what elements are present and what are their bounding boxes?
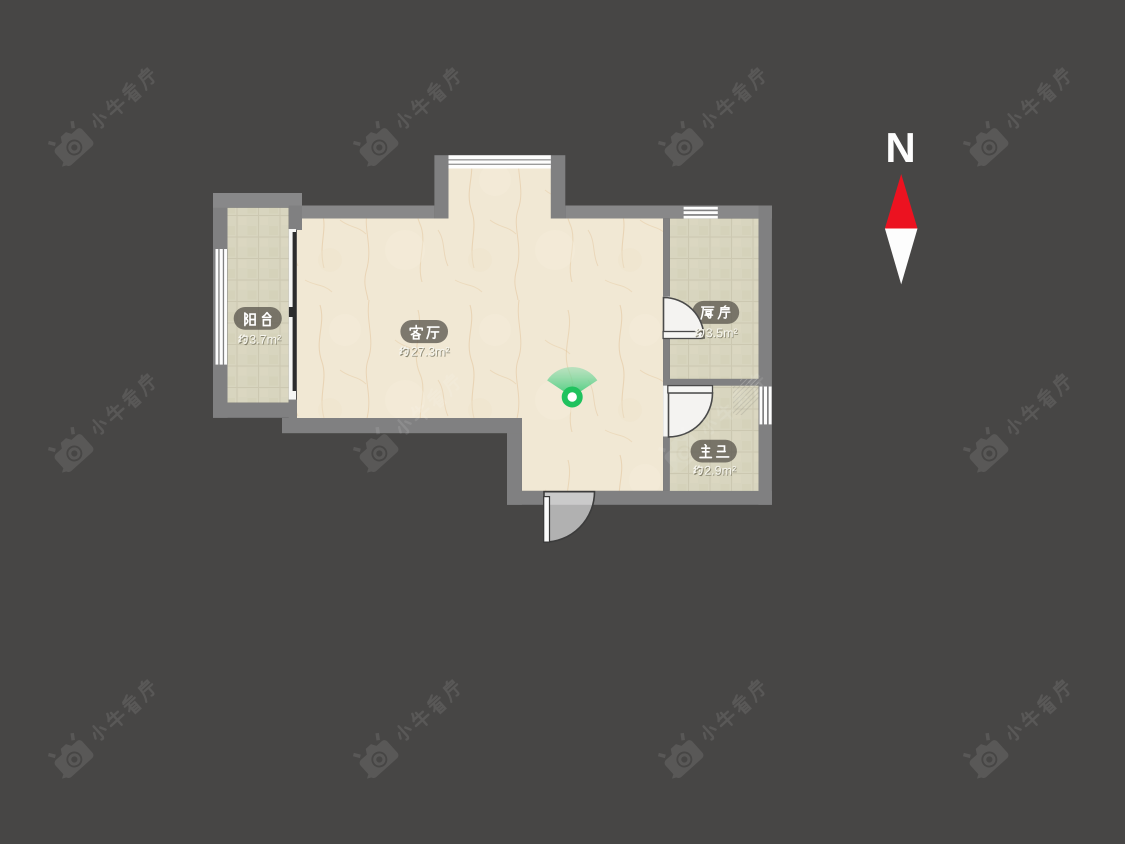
svg-text:3.5m²: 3.5m² xyxy=(706,326,738,340)
svg-text:27.3m²: 27.3m² xyxy=(411,345,450,359)
svg-text:3.7m²: 3.7m² xyxy=(249,333,281,347)
svg-text:2.9m²: 2.9m² xyxy=(704,464,736,478)
svg-text:N: N xyxy=(885,124,915,171)
